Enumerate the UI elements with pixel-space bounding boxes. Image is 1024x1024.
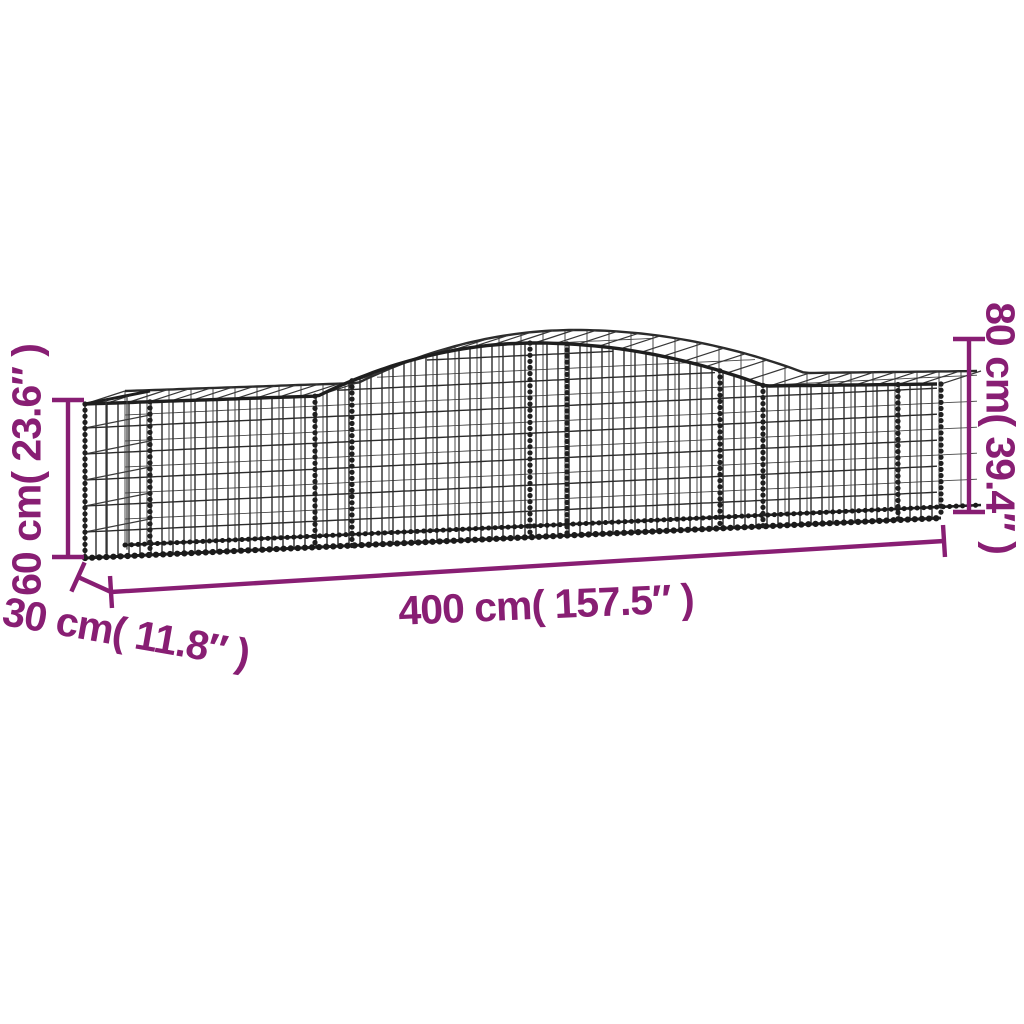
dimension-label-height-right: 80 cm( 39.4″ ) xyxy=(980,302,1021,554)
dimension-label-height-left: 60 cm( 23.6″ ) xyxy=(7,344,48,596)
dimension-lines xyxy=(52,339,985,608)
product-dimension-diagram: 60 cm( 23.6″ ) 80 cm( 39.4″ ) 30 cm( 11.… xyxy=(0,0,1024,1024)
mesh-back-face xyxy=(125,330,977,545)
gabion-basket-wireframe xyxy=(0,0,1024,1024)
bottom-edges xyxy=(85,505,981,558)
